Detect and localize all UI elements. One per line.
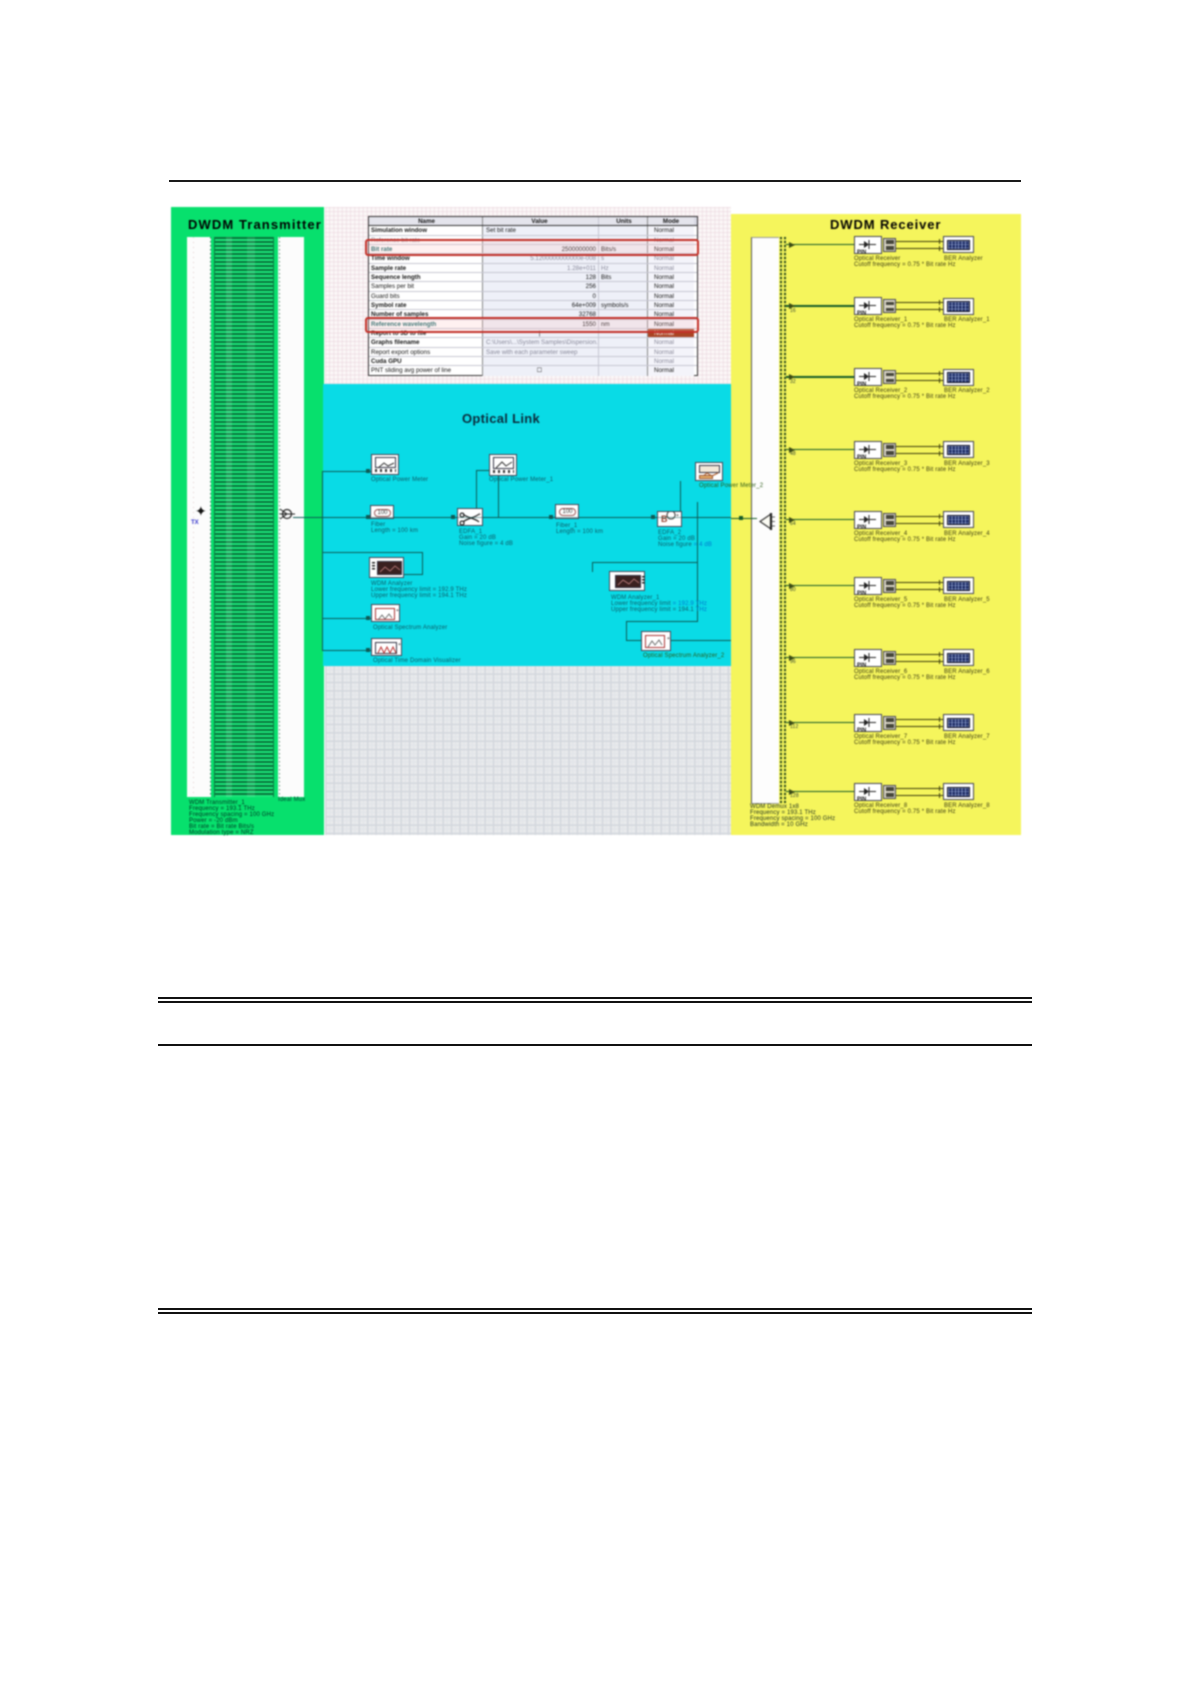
svg-text:PIN: PIN (857, 590, 866, 595)
svg-text:PIN: PIN (857, 796, 866, 801)
svg-text:PIN: PIN (857, 382, 866, 387)
svg-text:PIN: PIN (857, 727, 866, 732)
svg-text:PIN: PIN (857, 454, 866, 459)
svg-text:PIN: PIN (857, 524, 866, 529)
svg-text:PIN: PIN (857, 311, 866, 316)
svg-text:PIN: PIN (857, 662, 866, 667)
svg-text:PIN: PIN (857, 249, 866, 254)
